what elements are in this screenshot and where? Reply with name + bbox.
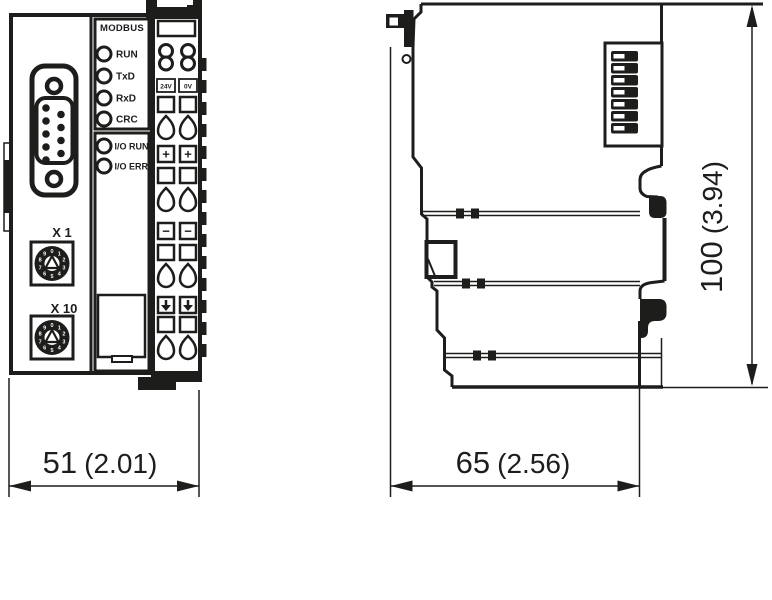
modbus-title: MODBUS (100, 23, 144, 34)
side-left-profile (413, 4, 427, 242)
dimension-height-label: 100(3.94) (694, 161, 729, 293)
minus-symbol: − (162, 224, 170, 239)
technical-drawing: MODBUS RUN TxD RxD CRC I/O RU (0, 0, 772, 600)
dimension-width: 51(2.01) (9, 378, 199, 497)
rotary-switch-label: X 10 (51, 301, 78, 316)
terminal-window (180, 97, 196, 112)
arrowhead-right-icon (177, 481, 199, 492)
led-label: RUN (116, 50, 138, 61)
led-crc: CRC (97, 112, 138, 126)
rotary-digit: 3 (62, 265, 65, 271)
arrowhead-left-icon (9, 481, 31, 492)
hook-pin (403, 55, 411, 63)
rotary-digit: 1 (58, 251, 61, 257)
rotary-digit: 2 (62, 258, 65, 264)
rotary-digit: 5 (50, 274, 53, 280)
rotary-digit: 5 (50, 348, 53, 354)
rotary-digit: 8 (39, 332, 42, 338)
groove-line-3 (445, 351, 661, 361)
led-indicator-icon (97, 69, 111, 83)
led-label: I/O RUN (115, 142, 149, 152)
led-indicator-icon (97, 112, 111, 126)
dip-switch-block (605, 43, 662, 146)
led-io-run: I/O RUN (97, 139, 149, 153)
terminal-window (158, 245, 174, 260)
terminal-lid (158, 21, 195, 36)
plus-symbol: + (162, 147, 170, 162)
rotary-digit: 6 (43, 272, 46, 278)
plus-symbol: + (184, 147, 192, 162)
arrowhead-right-icon (618, 481, 640, 492)
dsub-screw-top (47, 79, 61, 93)
rotary-digit: 7 (39, 339, 42, 345)
led-label: I/O ERR (115, 162, 149, 172)
dimension-depth-label: 65(2.56) (456, 445, 571, 480)
terminal-window (180, 168, 196, 183)
led-indicator-icon (97, 91, 111, 105)
rail-notch-lower (640, 281, 665, 299)
label-cover (98, 295, 145, 357)
rotary-digit: 1 (58, 325, 61, 331)
drawing-canvas: MODBUS RUN TxD RxD CRC I/O RU (0, 0, 772, 600)
led-indicator-icon (97, 159, 111, 173)
modbus-panel: MODBUS RUN TxD RxD CRC (95, 19, 149, 129)
terminal-bottom-foot (138, 377, 176, 390)
arrowhead-down-icon (747, 364, 758, 386)
rotary-digit: 7 (39, 265, 42, 271)
rail-clip-upper (649, 196, 667, 218)
terminal-window (158, 317, 174, 332)
io-panel: I/O RUN I/O ERR (95, 133, 149, 371)
led-indicator-icon (97, 47, 111, 61)
front-view: MODBUS RUN TxD RxD CRC I/O RU (4, 0, 207, 390)
led-rxd: RxD (97, 91, 136, 105)
terminal-label-0v: 0V (184, 84, 193, 91)
led-label: TxD (116, 72, 135, 83)
dimension-height: 100(3.94) (663, 5, 768, 388)
rotary-switch-label: X 1 (52, 225, 72, 240)
led-run: RUN (97, 47, 138, 61)
rotary-digit: 3 (62, 339, 65, 345)
dip-switches (611, 51, 638, 134)
terminal-top-cap (157, 7, 187, 19)
terminal-top-cap (146, 0, 157, 19)
rotary-digit: 2 (62, 332, 65, 338)
arrowhead-up-icon (747, 5, 758, 27)
side-notch-box (427, 242, 456, 277)
rotary-digit: 8 (39, 258, 42, 264)
cover-tab (112, 356, 132, 362)
rotary-digit: 6 (43, 346, 46, 352)
side-left-profile-lower (427, 277, 452, 387)
din-latch (4, 160, 11, 213)
led-txd: TxD (97, 69, 135, 83)
terminal-label-24v: 24V (160, 84, 172, 91)
terminal-window (180, 245, 196, 260)
dsub-screw-bottom (47, 172, 61, 186)
rotary-digit: 9 (43, 251, 46, 257)
groove-line-1 (421, 209, 640, 219)
terminal-window (158, 97, 174, 112)
terminal-top-cap-notch (187, 0, 193, 5)
led-label: RxD (116, 94, 136, 105)
led-io-err: I/O ERR (97, 159, 149, 173)
arrowhead-left-icon (391, 481, 413, 492)
terminal-window (158, 168, 174, 183)
led-label: CRC (116, 115, 138, 126)
dimension-width-label: 51(2.01) (43, 445, 158, 480)
groove-line-2 (434, 279, 640, 289)
rail-clip-lower (640, 299, 667, 338)
rail-notch-upper (640, 166, 662, 197)
rotary-digit: 9 (43, 325, 46, 331)
terminal-window (180, 317, 196, 332)
dsub-dshell (37, 98, 73, 163)
led-indicator-icon (97, 139, 111, 153)
dsub9-connector (32, 66, 76, 195)
minus-symbol: − (184, 224, 192, 239)
